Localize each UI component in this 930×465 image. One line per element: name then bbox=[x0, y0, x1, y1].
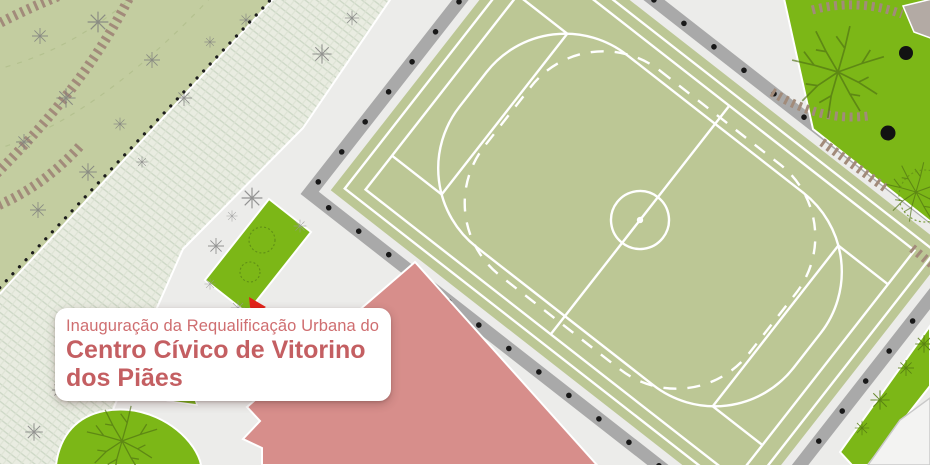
banner-title-line2: dos Piães bbox=[66, 364, 383, 392]
banner-subtitle: Inauguração da Requalificação Urbana do bbox=[66, 316, 383, 336]
title-card: Inauguração da Requalificação Urbana do … bbox=[55, 308, 391, 401]
tree-trunk-dot bbox=[881, 126, 896, 141]
tree-trunk-dot bbox=[899, 46, 913, 60]
plan-banner: Inauguração da Requalificação Urbana do … bbox=[0, 0, 930, 465]
banner-title-line1: Centro Cívico de Vitorino bbox=[66, 336, 383, 364]
